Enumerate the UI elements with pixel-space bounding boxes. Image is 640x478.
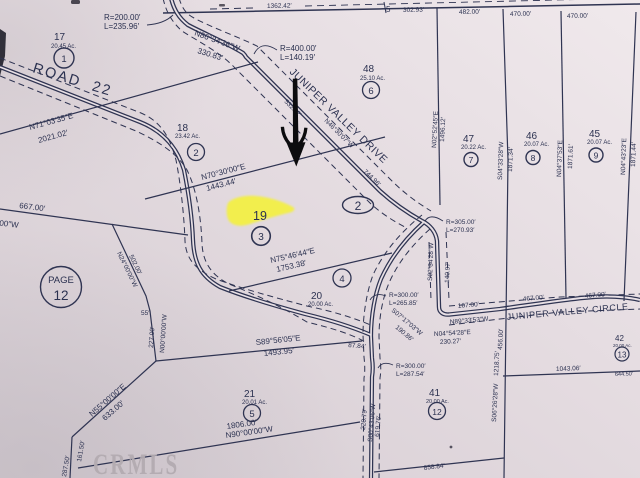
svg-text:CRMLS: CRMLS [93, 447, 179, 478]
svg-text:21: 21 [244, 389, 256, 400]
svg-text:47: 47 [463, 134, 475, 145]
svg-text:20.07 Ac.: 20.07 Ac. [524, 142, 549, 148]
svg-text:S02°34′28″W: S02°34′28″W [426, 242, 435, 281]
svg-text:L=270.93′: L=270.93′ [446, 227, 475, 234]
svg-text:12: 12 [432, 407, 442, 417]
svg-text:482.00′: 482.00′ [459, 9, 481, 16]
svg-text:45: 45 [589, 129, 601, 140]
svg-text:R=300.00′: R=300.00′ [389, 292, 419, 299]
svg-text:1496.12′: 1496.12′ [439, 116, 447, 142]
svg-text:1043.06′: 1043.06′ [556, 365, 582, 373]
svg-text:20.07 Ac.: 20.07 Ac. [587, 140, 612, 146]
svg-text:R=400.00′: R=400.00′ [280, 44, 317, 53]
svg-text:302.93′: 302.93′ [403, 7, 425, 14]
svg-text:23.42 Ac.: 23.42 Ac. [175, 134, 200, 140]
svg-text:1218.75′: 1218.75′ [493, 350, 501, 376]
svg-text:20.22 Ac.: 20.22 Ac. [461, 145, 486, 151]
svg-text:1362.42′: 1362.42′ [267, 3, 293, 10]
svg-text:L=235.96′: L=235.96′ [104, 22, 140, 31]
svg-text:48: 48 [363, 64, 375, 75]
svg-text:4: 4 [339, 274, 344, 285]
svg-text:9: 9 [594, 151, 599, 161]
svg-text:644.50′: 644.50′ [615, 371, 633, 378]
svg-text:41: 41 [429, 388, 441, 399]
svg-text:5: 5 [386, 5, 391, 14]
svg-text:8: 8 [531, 153, 536, 163]
svg-text:456.00′: 456.00′ [497, 328, 505, 350]
svg-text:L=265.85′: L=265.85′ [389, 300, 418, 307]
svg-text:140.97′: 140.97′ [444, 261, 452, 283]
svg-text:3: 3 [258, 232, 264, 243]
svg-text:20: 20 [311, 291, 323, 302]
svg-text:1: 1 [61, 54, 66, 65]
svg-text:470.00′: 470.00′ [510, 11, 532, 18]
svg-text:6: 6 [368, 86, 373, 97]
svg-text:230.27′: 230.27′ [440, 338, 462, 346]
svg-text:7: 7 [469, 155, 474, 165]
svg-text:17: 17 [54, 32, 66, 43]
svg-text:2: 2 [193, 148, 198, 159]
svg-text:46: 46 [526, 131, 538, 142]
svg-text:R=300.00′: R=300.00′ [396, 363, 426, 370]
svg-text:19: 19 [253, 209, 267, 223]
svg-text:2: 2 [355, 199, 362, 213]
svg-text:PAGE: PAGE [48, 275, 74, 286]
svg-text:18: 18 [177, 123, 189, 134]
svg-text:42: 42 [615, 334, 624, 343]
svg-text:L=140.19′: L=140.19′ [280, 53, 316, 62]
svg-text:N04°43′23″E: N04°43′23″E [619, 137, 628, 175]
svg-text:L=287.54′: L=287.54′ [396, 371, 425, 378]
svg-text:S04°33′28″W: S04°33′28″W [496, 141, 505, 180]
svg-text:13: 13 [618, 351, 627, 360]
svg-text:N04°37′53″E: N04°37′53″E [555, 139, 564, 177]
svg-text:1871.61′: 1871.61′ [567, 143, 575, 169]
svg-text:12: 12 [53, 288, 68, 303]
svg-text:R=200.00′: R=200.00′ [104, 13, 141, 22]
svg-text:55′: 55′ [141, 310, 150, 317]
svg-text:R=305.00′: R=305.00′ [446, 219, 476, 226]
svg-text:20.00 Ac.: 20.00 Ac. [308, 302, 333, 308]
svg-text:20.45 Ac.: 20.45 Ac. [51, 44, 76, 50]
svg-text:1871.34′: 1871.34′ [507, 146, 515, 172]
svg-text:470.00′: 470.00′ [567, 13, 589, 20]
svg-text:1871.44′: 1871.44′ [630, 141, 638, 167]
